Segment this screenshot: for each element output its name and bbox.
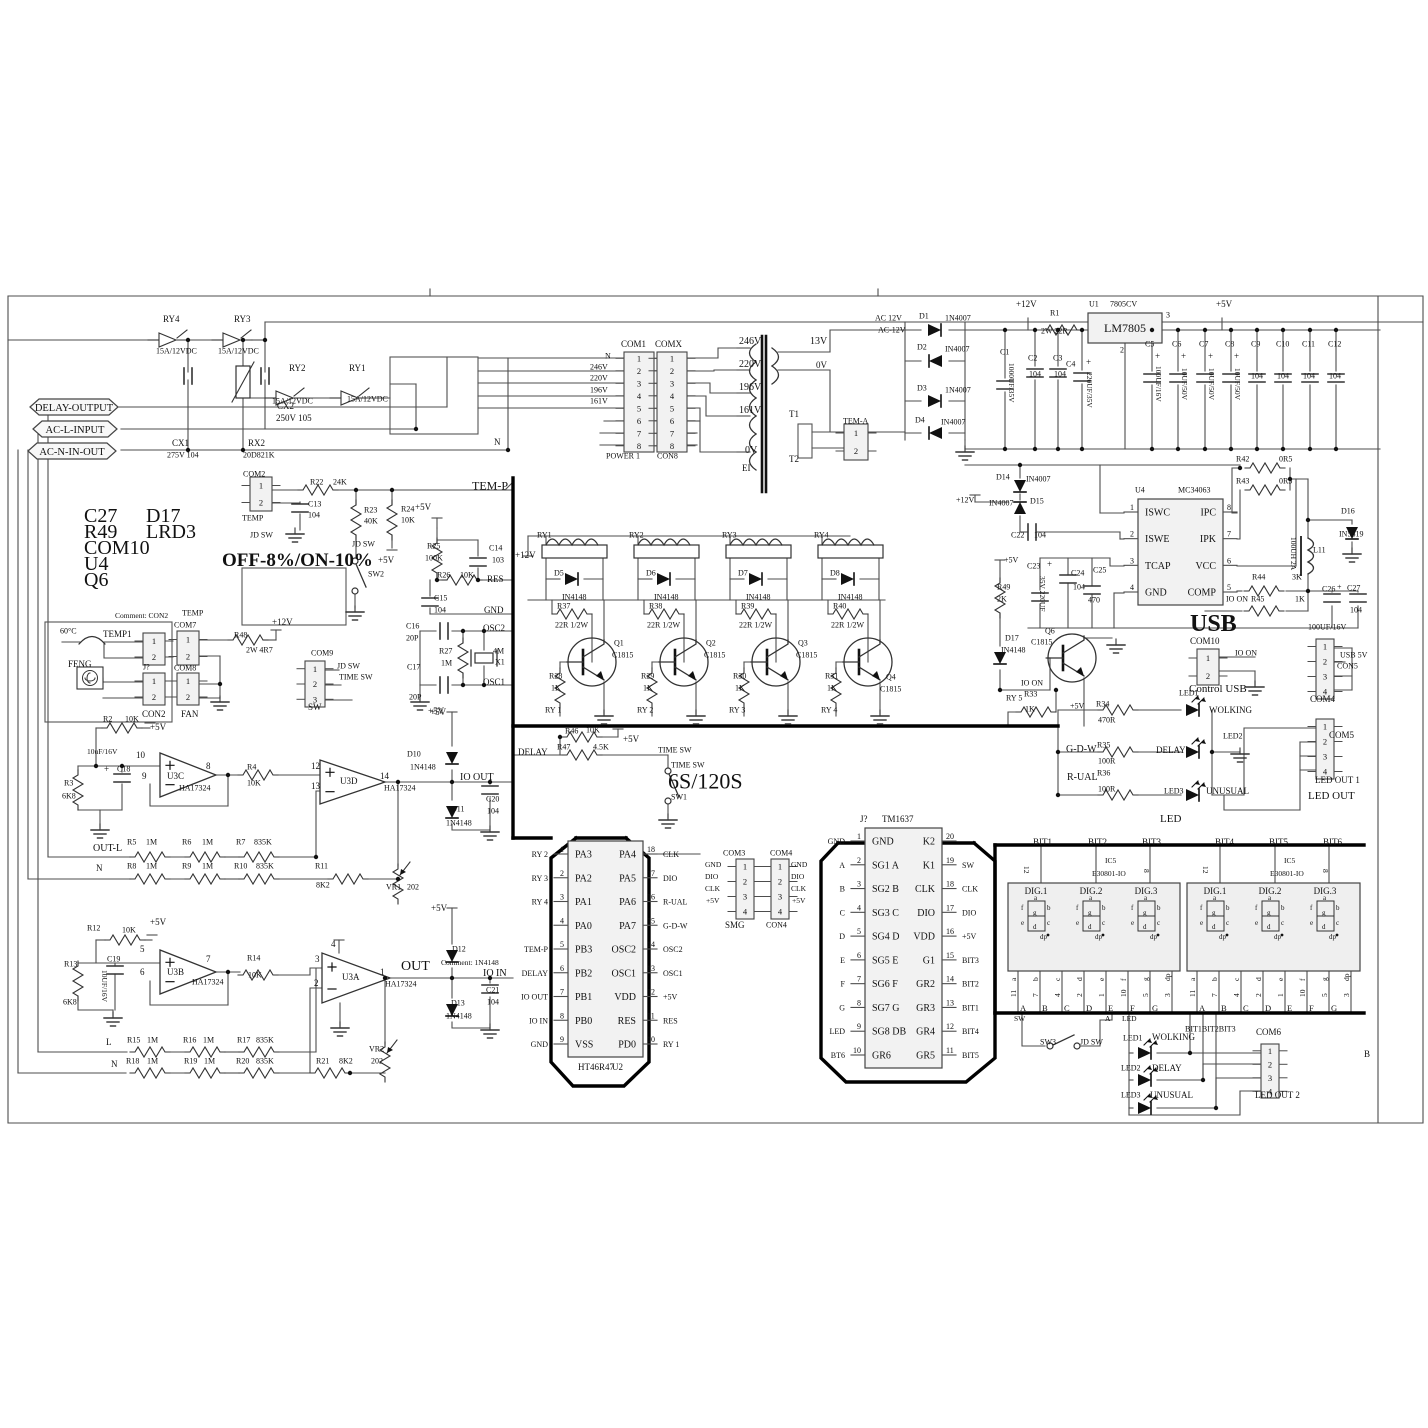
schematic-label: UNUSUAL xyxy=(1206,786,1249,796)
ic-pin-name: SG8 DB xyxy=(872,1027,907,1038)
schematic-label: SW1 xyxy=(671,792,687,801)
schematic-label: IN4148 xyxy=(746,592,770,601)
schematic-label: 22R 1/2W xyxy=(555,620,589,629)
schematic-label: 1M xyxy=(202,861,213,870)
schematic-label: R48 xyxy=(234,630,247,639)
schematic-label: D3 xyxy=(917,383,927,392)
connector-pin-number: 2 xyxy=(1323,657,1327,667)
schematic-label: 104 xyxy=(1303,371,1315,380)
schematic-label: COMX xyxy=(655,339,683,349)
schematic-label: SW xyxy=(1014,1014,1026,1023)
seg-pin-letter: g xyxy=(1320,977,1329,981)
schematic-label: Q2 xyxy=(706,638,716,647)
schematic-label: RY3 xyxy=(722,530,737,539)
schematic-label: 104 xyxy=(487,997,499,1006)
seg-pin-number: 11 xyxy=(1009,990,1018,997)
schematic-label: 12 xyxy=(1022,866,1031,874)
schematic-label: R16 xyxy=(183,1035,196,1044)
schematic-label: D2 xyxy=(917,342,927,351)
ic-pin-number: 17 xyxy=(647,869,655,878)
schematic-label: VR2 xyxy=(369,1044,384,1053)
seg-letter: e xyxy=(1021,919,1024,927)
schematic-label: 104 xyxy=(1054,369,1066,378)
connector-pin-number: 1 xyxy=(1323,722,1327,732)
schematic-label: R12 xyxy=(87,923,100,932)
schematic-label: RY4 xyxy=(163,314,180,324)
diode-symbol xyxy=(928,395,941,407)
transformer-winding xyxy=(772,348,779,366)
ic-pin-name: ISWE xyxy=(1145,534,1169,545)
junction-dot xyxy=(1056,750,1060,754)
schematic-label: 104 xyxy=(1029,369,1041,378)
ic-pin-number: 8 xyxy=(857,998,861,1007)
ic-pin-number: 15 xyxy=(946,951,954,960)
ic-pin-name: VDD xyxy=(913,932,935,943)
resistor-symbol xyxy=(102,723,142,733)
schematic-label: COM2 xyxy=(243,469,265,478)
junction-dot xyxy=(1018,463,1022,467)
schematic-label: R29 xyxy=(641,671,654,680)
ic-pin-number: 6 xyxy=(857,951,861,960)
schematic-label: +5V xyxy=(415,502,432,512)
connector-pin-number: 2 xyxy=(854,446,858,456)
schematic-label: 1K xyxy=(551,683,561,692)
ic-pin-number: 7 xyxy=(857,975,861,984)
schematic-label: C16 xyxy=(406,621,419,630)
schematic-label: 1 xyxy=(380,967,385,977)
ic-pin-number: 18 xyxy=(647,845,655,854)
schematic-label: SW xyxy=(308,702,322,712)
ic-pin-name: PA0 xyxy=(575,921,592,932)
diode-symbol xyxy=(1014,480,1026,492)
seg-pin-number: 2 xyxy=(1075,993,1084,997)
schematic-label: D8 xyxy=(830,568,840,577)
schematic-label: 196V xyxy=(739,382,762,393)
schematic-label: 10UF/50V xyxy=(1207,368,1216,401)
schematic-label: D13 xyxy=(451,998,465,1007)
ic-pin-number: 20 xyxy=(946,832,954,841)
schematic-label: IO IN xyxy=(483,968,507,979)
schematic-label: U3A xyxy=(342,972,360,982)
schematic-label: R20 xyxy=(236,1056,249,1065)
diode-symbol xyxy=(929,427,942,439)
schematic-label: D12 xyxy=(452,944,466,953)
resistor-symbol xyxy=(328,874,368,884)
schematic-label: COM8 xyxy=(174,663,196,672)
schematic-label: + xyxy=(1337,582,1342,591)
schematic-label: + xyxy=(1086,357,1091,367)
connector-pin-number: 1 xyxy=(1323,642,1327,652)
ic-pin-signal: TEM-P xyxy=(524,945,549,954)
relay-coil xyxy=(818,545,883,558)
ic-top-label: TM1637 xyxy=(882,814,914,824)
schematic-label: 9 xyxy=(142,771,147,781)
junction-dot xyxy=(1238,466,1242,470)
schematic-label: 15A/12VDC xyxy=(218,346,259,355)
ic-pin-signal: GND xyxy=(828,837,846,846)
connector-pin-number: 2 xyxy=(1323,737,1327,747)
seg-pin-cap: D xyxy=(1086,1003,1092,1013)
schematic-label: DELAY xyxy=(1152,1063,1182,1073)
schematic-label: C19 xyxy=(107,954,120,963)
seg-pin-number: 10 xyxy=(1298,989,1307,997)
wire xyxy=(1008,712,1016,726)
schematic-label: 246V xyxy=(739,336,762,347)
connector-pin-number: 2 xyxy=(1268,1059,1272,1069)
ic-pin-name: SG6 F xyxy=(872,979,898,990)
junction-dot xyxy=(450,976,454,980)
seg-letter: e xyxy=(1255,919,1258,927)
schematic-label: 10K xyxy=(248,970,262,979)
schematic-label: DELAY xyxy=(1156,745,1186,755)
schematic-label: 10UF/50V xyxy=(1180,368,1189,401)
ic-pin-number: 7 xyxy=(560,988,564,997)
schematic-label: TEMP xyxy=(242,513,264,522)
npn-emitter-arrow xyxy=(596,671,604,680)
connector-pin-number: 1 xyxy=(313,664,317,674)
schematic-label: R9 xyxy=(182,861,191,870)
schematic-label: 1M xyxy=(146,837,157,846)
schematic-label: 104 xyxy=(1034,530,1046,539)
diode-symbol xyxy=(928,324,941,336)
schematic-label: R38 xyxy=(649,601,662,610)
schematic-label: SMG xyxy=(725,920,745,930)
ic-pin-name: VSS xyxy=(575,1040,593,1051)
ic-pin-name: PA4 xyxy=(619,850,636,861)
schematic-label: Q1 xyxy=(614,638,624,647)
seg-pin-number: 5 xyxy=(1320,993,1329,997)
schematic-label: C4 xyxy=(1066,359,1075,368)
junction-dot xyxy=(1229,328,1233,332)
schematic-label: LED2 xyxy=(1121,1063,1141,1072)
schematic-label: 104 xyxy=(487,806,499,815)
resistor-symbol xyxy=(105,935,145,945)
seg-letter: c xyxy=(1281,919,1284,927)
schematic-label: + xyxy=(1181,351,1186,361)
connector-pin-number: 2 xyxy=(778,877,782,887)
resistor-symbol xyxy=(552,609,592,619)
schematic-label: C2 xyxy=(1028,353,1037,362)
connector-pin-number: 2 xyxy=(152,692,156,702)
seg-pin-letter: dp xyxy=(1163,973,1172,981)
schematic-label: A xyxy=(1105,1014,1111,1023)
schematic-label: DIO xyxy=(791,872,805,881)
schematic-label: R31 xyxy=(825,671,838,680)
schematic-label: R10 xyxy=(234,861,247,870)
connector-pin-number: 1 xyxy=(670,353,674,363)
schematic-label: +5V xyxy=(378,555,395,565)
ic-top-label: J? xyxy=(860,814,868,824)
schematic-label: R7 xyxy=(236,837,245,846)
schematic-page: DELAY-OUTPUTAC-L-INPUTAC-N-IN-OUT1212121… xyxy=(0,0,1428,1428)
seg-pin-number: 3 xyxy=(1163,993,1172,997)
schematic-label: AC-12V xyxy=(878,325,906,334)
ic-pin-number: 1 xyxy=(560,845,564,854)
relay-coil xyxy=(638,539,690,545)
schematic-label: 835K xyxy=(254,837,272,846)
schematic-label: R2 xyxy=(103,714,112,723)
ic-pin-number: 8 xyxy=(1227,503,1231,512)
seg-pin-number: 7 xyxy=(1031,993,1040,997)
ic-pin-number: 4 xyxy=(560,916,564,925)
schematic-label: + xyxy=(1234,351,1239,361)
schematic-label: JD SW xyxy=(1080,1037,1103,1046)
schematic-label: 22R 1/2W xyxy=(831,620,865,629)
seg-letter: b xyxy=(1157,904,1161,912)
resistor-symbol xyxy=(458,638,468,678)
connector-pin-number: 2 xyxy=(743,877,747,887)
potentiometer-arrow xyxy=(387,1047,393,1053)
junction-dot xyxy=(396,877,400,881)
seg-pin-cap: F xyxy=(1130,1003,1135,1013)
schematic-label: 1N4007 xyxy=(945,385,971,394)
seg-pin-number: 4 xyxy=(1053,993,1062,997)
ic-pin-signal: +5V xyxy=(962,932,977,941)
junction-dot xyxy=(1281,447,1285,451)
ic-pin-name: SG4 D xyxy=(872,932,900,943)
schematic-label: R35 xyxy=(1097,740,1110,749)
schematic-label: RY 5 xyxy=(1006,693,1022,702)
ic-pin-name: OSC1 xyxy=(612,968,636,979)
schematic-label: HA17324 xyxy=(385,979,417,988)
net-flag-label: AC-L-INPUT xyxy=(46,425,105,436)
schematic-label: HA17324 xyxy=(384,783,416,792)
seg-letter: g xyxy=(1322,909,1326,917)
schematic-label: +5V xyxy=(431,903,448,913)
schematic-label: 1M xyxy=(147,1035,158,1044)
resistor-symbol xyxy=(239,874,279,884)
ic-pin-number: 7 xyxy=(1227,530,1231,539)
schematic-canvas: DELAY-OUTPUTAC-L-INPUTAC-N-IN-OUT1212121… xyxy=(0,0,1428,1428)
junction-dot xyxy=(506,448,510,452)
ic-pin-signal: G xyxy=(839,1003,845,1012)
schematic-label: OUT-L xyxy=(93,843,122,854)
diode-symbol xyxy=(1186,789,1199,801)
schematic-label: C21 xyxy=(486,985,499,994)
schematic-label: 20P xyxy=(409,692,422,701)
schematic-label: IO OUT xyxy=(460,772,494,783)
npn-transistor xyxy=(1063,636,1084,653)
schematic-label: E30801-IO xyxy=(1270,869,1304,878)
schematic-label: D11 xyxy=(451,804,464,813)
schematic-label: GND xyxy=(705,860,722,869)
ic-pin-number: 4 xyxy=(1130,583,1134,592)
schematic-label: 10K xyxy=(122,925,136,934)
schematic-label: POWER 1 xyxy=(606,451,640,460)
schematic-label: 1M xyxy=(204,1056,215,1065)
schematic-label: UNUSUAL xyxy=(1150,1090,1193,1100)
schematic-label: COM3 xyxy=(723,848,745,857)
ic-pin-name: PA1 xyxy=(575,897,592,908)
ic-pin-name: VCC xyxy=(1195,561,1216,572)
seg-letter: e xyxy=(1131,919,1134,927)
connector-pin-number: 3 xyxy=(1323,752,1327,762)
relay-contact xyxy=(223,333,240,347)
schematic-label: C1815 xyxy=(1031,637,1052,646)
schematic-label: D15 xyxy=(1030,496,1044,505)
schematic-label: C10 xyxy=(1276,339,1289,348)
schematic-label: D16 xyxy=(1341,506,1355,515)
ic-pin-number: 6 xyxy=(1227,556,1231,565)
ic-label: LM7805 xyxy=(1104,321,1146,335)
seg-dp-dot xyxy=(1226,934,1229,937)
wire xyxy=(1237,490,1240,539)
resistor-symbol xyxy=(130,874,170,884)
schematic-label: 161V xyxy=(739,405,762,416)
schematic-label: C24 xyxy=(1071,568,1084,577)
ic-pin-name: IPC xyxy=(1200,508,1216,519)
connector-pin-number: 2 xyxy=(637,366,641,376)
schematic-label: OFF-8%/ON-10% xyxy=(222,550,373,571)
ic-pin-name: SG7 G xyxy=(872,1003,900,1014)
relay-contact xyxy=(176,330,188,340)
resistor-symbol xyxy=(73,770,83,810)
ic-sub-label: U2 xyxy=(612,1062,623,1072)
ic-pin-signal: RY 4 xyxy=(532,898,548,907)
seg-letter: d xyxy=(1322,923,1326,931)
connector-pin-number: 2 xyxy=(186,692,190,702)
diode-symbol xyxy=(565,573,578,585)
ic-pin-number: 13 xyxy=(946,998,954,1007)
schematic-label: X1 xyxy=(495,657,505,666)
seg-letter: dp xyxy=(1274,933,1282,941)
schematic-label: 1M xyxy=(441,658,452,667)
ic-pin-number: 4 xyxy=(857,903,861,912)
seg-pin-cap: G xyxy=(1152,1003,1158,1013)
diode-symbol xyxy=(841,573,854,585)
relay-coil xyxy=(634,545,699,558)
schematic-label: CON8 xyxy=(657,451,678,460)
connector-pin-number: 1 xyxy=(1268,1046,1272,1056)
schematic-label: 2K xyxy=(997,594,1007,603)
schematic-label: IN4148 xyxy=(1001,645,1025,654)
ic-pin-name: GR4 xyxy=(916,1027,935,1038)
junction-dot xyxy=(218,682,222,686)
schematic-label: CON5 xyxy=(1337,661,1358,670)
schematic-label: 835K xyxy=(256,1056,274,1065)
relay-contact xyxy=(159,333,176,347)
seg-pin-cap: G xyxy=(1331,1003,1337,1013)
schematic-label: U3B xyxy=(167,967,184,977)
schematic-label: C15 xyxy=(434,593,447,602)
connector-pin-number: 7 xyxy=(637,428,641,438)
connector-pin-number: 1 xyxy=(1206,653,1210,663)
schematic-label: R19 xyxy=(184,1056,197,1065)
resistor-symbol xyxy=(351,500,361,540)
schematic-label: GND xyxy=(484,605,504,615)
schematic-label: 12 xyxy=(1201,866,1210,874)
schematic-label: 100K xyxy=(425,553,443,562)
schematic-label: CON2 xyxy=(142,709,166,719)
schematic-label: Q3 xyxy=(798,638,808,647)
junction-dot xyxy=(1306,518,1310,522)
schematic-label: 104 xyxy=(1350,605,1362,614)
junction-dot xyxy=(241,338,245,342)
schematic-label: R17 xyxy=(237,1035,250,1044)
outline-box xyxy=(242,568,346,625)
wire xyxy=(1244,728,1316,795)
schematic-label: D6 xyxy=(646,568,656,577)
schematic-label: C9 xyxy=(1251,339,1260,348)
schematic-label: 4 xyxy=(331,939,336,949)
seg-letter: g xyxy=(1267,909,1271,917)
schematic-label: R40 xyxy=(833,601,846,610)
schematic-label: C1815 xyxy=(704,650,725,659)
schematic-label: BIT6 xyxy=(1323,837,1342,847)
schematic-label: IN4007 xyxy=(1026,474,1050,483)
junction-dot xyxy=(998,688,1002,692)
ic-pin-number: 1 xyxy=(1130,503,1134,512)
schematic-label: COM4 xyxy=(770,848,792,857)
net-flag-label: AC-N-IN-OUT xyxy=(39,447,105,458)
schematic-label: 1M xyxy=(146,861,157,870)
schematic-label: D1 xyxy=(919,311,929,320)
schematic-label: 1N4148 xyxy=(446,1011,472,1020)
net-flag-label: DELAY-OUTPUT xyxy=(35,403,114,414)
schematic-label: 0R5 xyxy=(1279,454,1292,463)
seg-letter: dp xyxy=(1150,933,1158,941)
ic-pin-signal: RES xyxy=(663,1016,678,1025)
ic-pin-number: 12 xyxy=(946,1022,954,1031)
seg-pin-number: 10 xyxy=(1119,989,1128,997)
schematic-label: LED OUT xyxy=(1308,790,1355,802)
seg-letter: dp xyxy=(1329,933,1337,941)
schematic-label: 1N4148 xyxy=(410,762,436,771)
schematic-label: 104 xyxy=(308,510,320,519)
schematic-label: 10K xyxy=(460,570,474,579)
ic-pin-number: 12 xyxy=(647,988,655,997)
schematic-label: IN4007 xyxy=(941,417,965,426)
schematic-label: RY4 xyxy=(814,530,829,539)
schematic-label: 1K xyxy=(735,683,745,692)
schematic-label: COM6 xyxy=(1256,1027,1282,1037)
schematic-label: RY 1 xyxy=(545,705,561,714)
ic-pin-number: 16 xyxy=(647,893,655,902)
junction-dot xyxy=(1033,328,1037,332)
schematic-label: +5V xyxy=(150,722,167,732)
schematic-label: JD SW xyxy=(250,530,273,539)
ic-pin-name: PB3 xyxy=(575,945,592,956)
npn-transistor xyxy=(767,640,788,657)
schematic-label: 22R 1/2W xyxy=(739,620,773,629)
junction-dot xyxy=(186,338,190,342)
schematic-label: TEM-A xyxy=(843,416,869,425)
schematic-label: + xyxy=(1047,559,1052,569)
schematic-label: OSC1 xyxy=(483,677,505,687)
ic-pin-number: 16 xyxy=(946,927,954,936)
seg-letter: d xyxy=(1033,923,1037,931)
schematic-label: 220V xyxy=(739,359,762,370)
seg-pin-letter: e xyxy=(1276,977,1285,981)
seg-pin-number: 2 xyxy=(1254,993,1263,997)
ic-pin-name: DIO xyxy=(917,908,935,919)
seg-pin-cap: B xyxy=(1042,1003,1048,1013)
junction-dot xyxy=(1308,447,1312,451)
schematic-label: 220UF/35V xyxy=(1085,372,1094,408)
schematic-label: HA17324 xyxy=(179,783,211,792)
schematic-label: R44 xyxy=(1252,572,1265,581)
inductor-symbol xyxy=(1308,538,1314,574)
resistor-symbol xyxy=(298,485,338,495)
schematic-label: 196V xyxy=(590,385,608,394)
junction-dot xyxy=(314,855,318,859)
schematic-label: C18 xyxy=(117,764,130,773)
switch-lever xyxy=(1053,1035,1074,1045)
ic-pin-name: PB2 xyxy=(575,968,592,979)
schematic-label: 3K xyxy=(1292,572,1302,581)
seg-pin-cap: F xyxy=(1309,1003,1314,1013)
npn-emitter-arrow xyxy=(1076,667,1084,676)
